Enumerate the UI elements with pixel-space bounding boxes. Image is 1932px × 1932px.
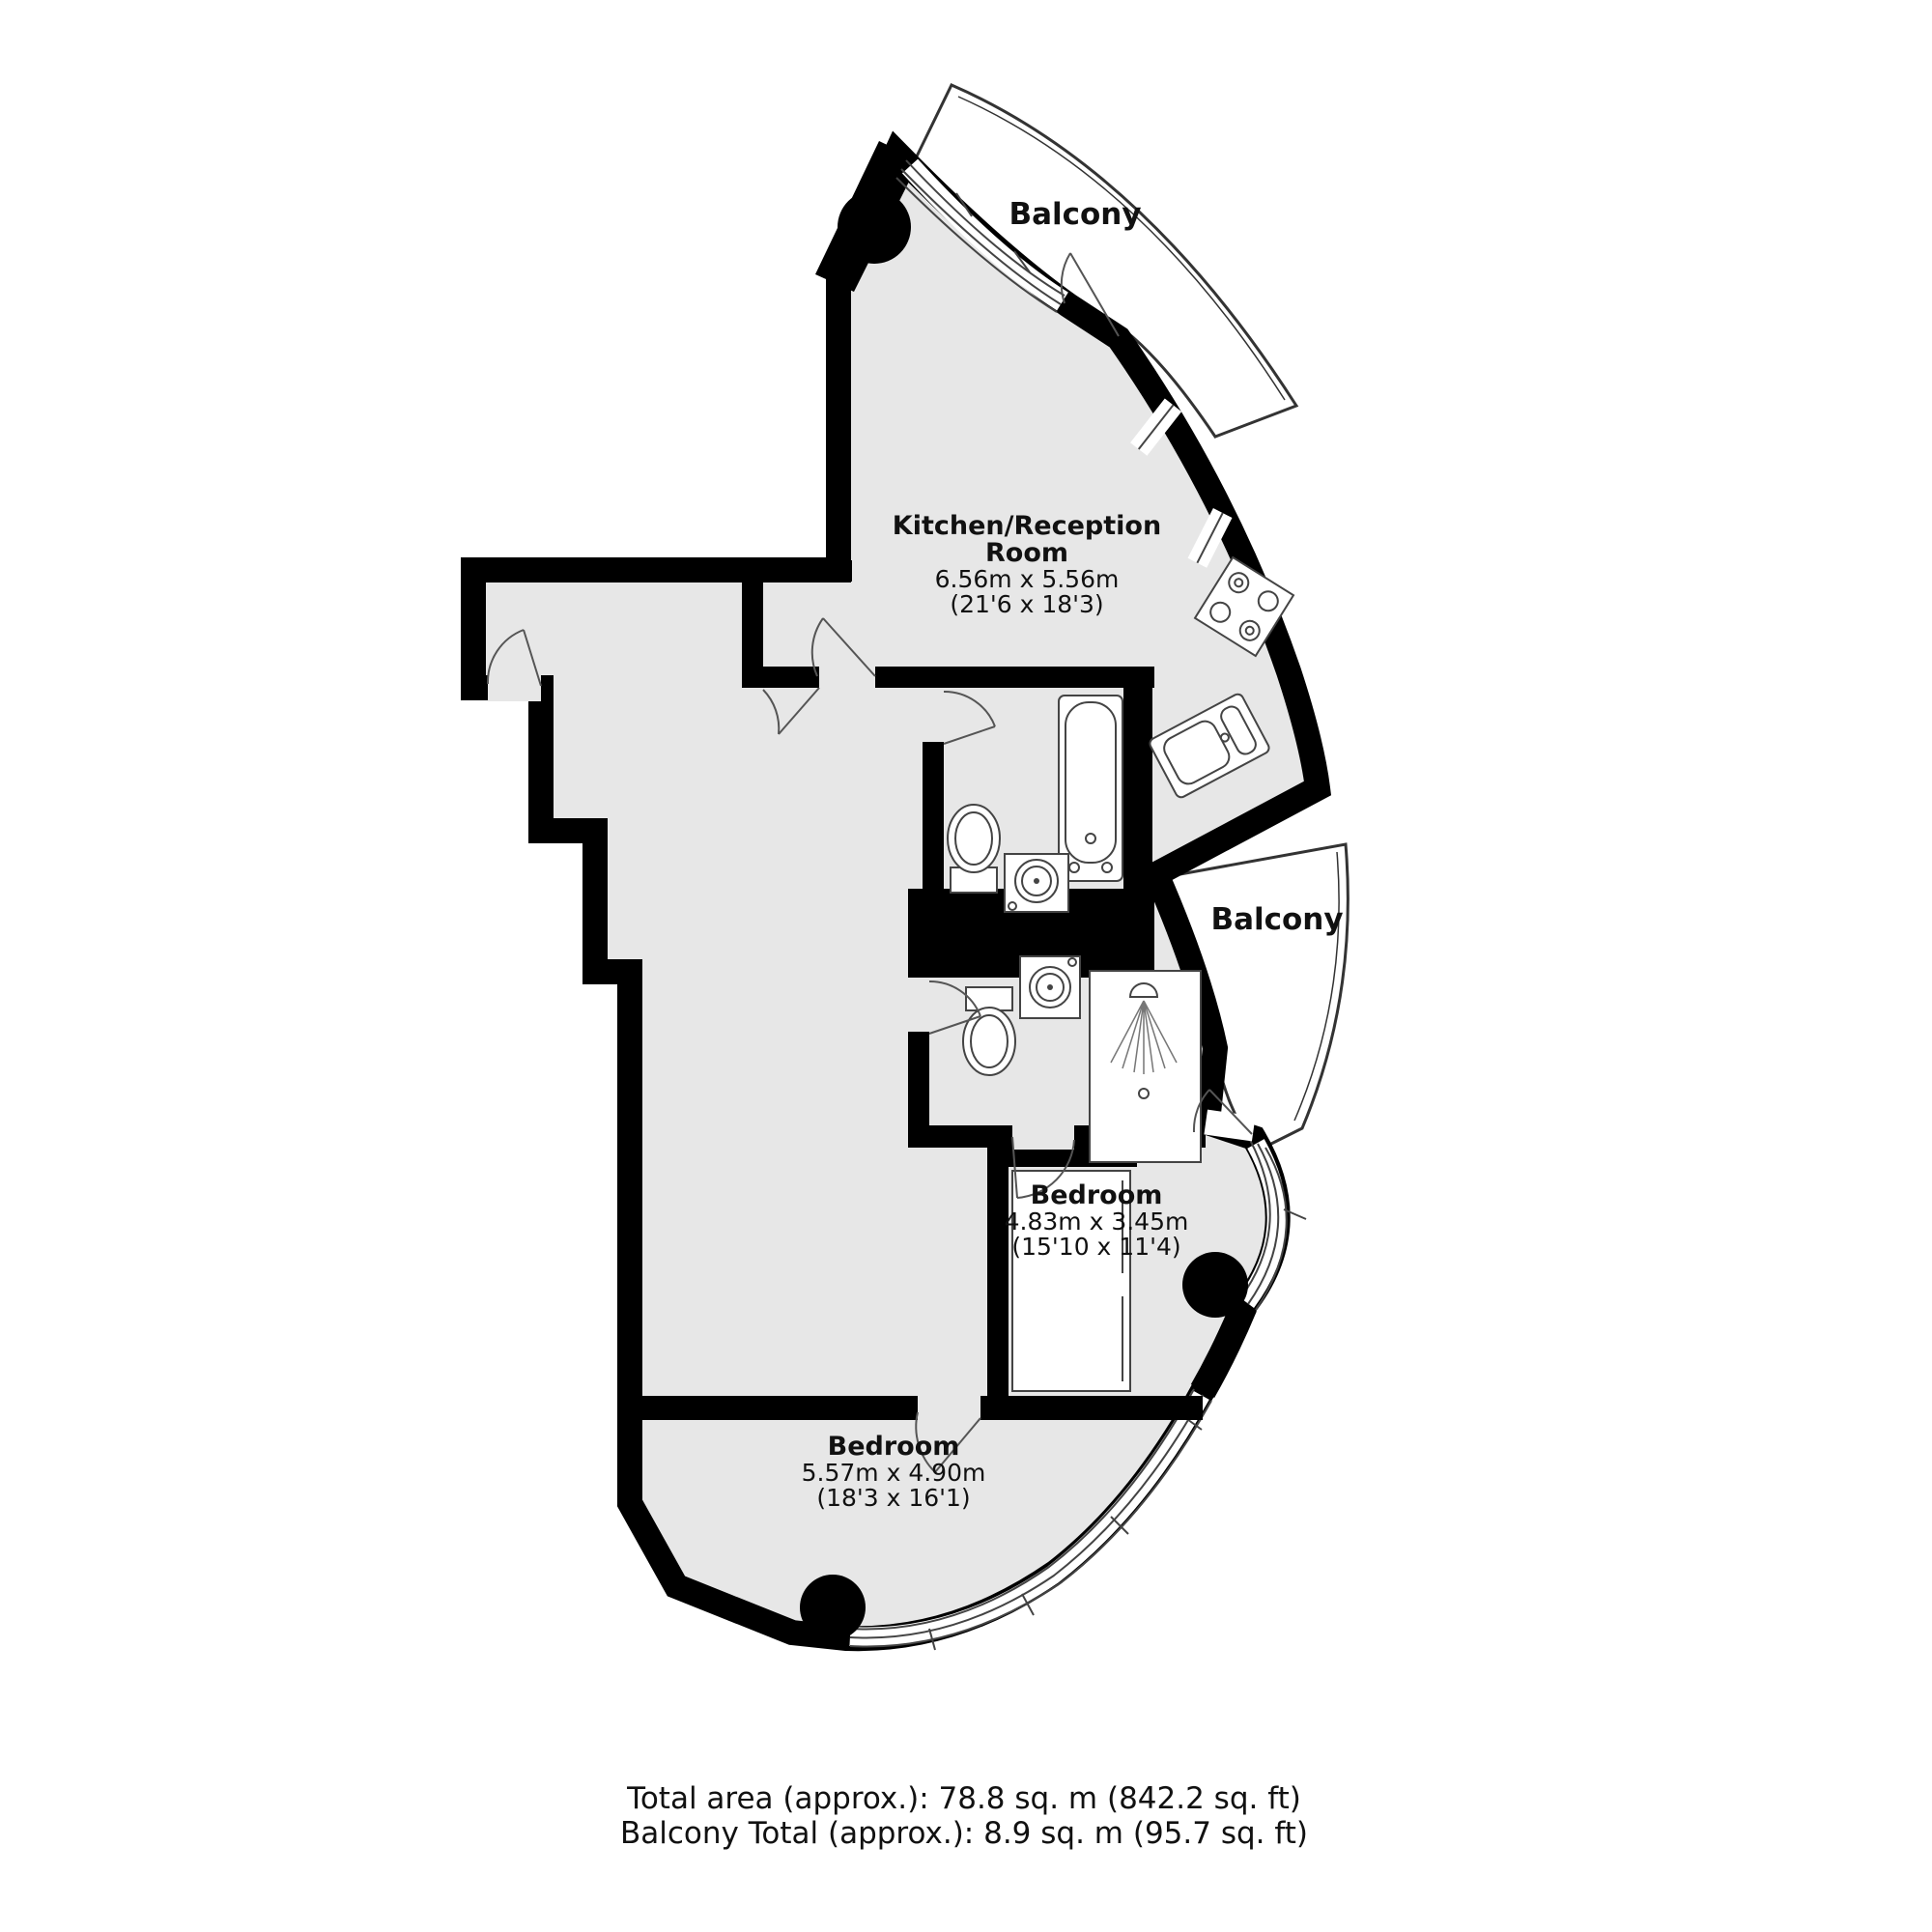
kitchen-name-line2: Room [985, 538, 1068, 568]
column-icon [800, 1575, 866, 1640]
bedroom2-name: Bedroom [828, 1432, 960, 1462]
kitchen-name-line1: Kitchen/Reception [893, 511, 1161, 541]
bedroom2-dim-metric: 5.57m x 4.90m [802, 1459, 986, 1487]
bedroom2-dim-imperial: (18'3 x 16'1) [816, 1484, 970, 1512]
balcony-mid-label: Balcony [1210, 902, 1343, 937]
bedroom1-dim-metric: 4.83m x 3.45m [1005, 1207, 1189, 1236]
bedroom2-label: Bedroom 5.57m x 4.90m (18'3 x 16'1) [802, 1432, 986, 1512]
total-area-text: Total area (approx.): 78.8 sq. m (842.2 … [626, 1781, 1301, 1816]
floorplan-drawing: Balcony Balcony Kitchen/Reception Room 6… [0, 0, 1932, 1932]
bedroom1-label: Bedroom 4.83m x 3.45m (15'10 x 11'4) [1005, 1180, 1189, 1261]
column-icon [1182, 1252, 1248, 1318]
kitchen-dim-metric: 6.56m x 5.56m [935, 565, 1120, 593]
shower-icon [1090, 971, 1201, 1162]
bedroom1-dim-imperial: (15'10 x 11'4) [1011, 1233, 1180, 1261]
kitchen-dim-imperial: (21'6 x 18'3) [950, 590, 1103, 618]
balcony-total-text: Balcony Total (approx.): 8.9 sq. m (95.7… [620, 1816, 1308, 1851]
bedroom1-name: Bedroom [1031, 1180, 1163, 1210]
basin-icon [1005, 854, 1068, 912]
basin-icon [1020, 956, 1080, 1018]
toilet-icon [948, 805, 1000, 893]
balcony-top-label: Balcony [1009, 197, 1141, 232]
footer-totals: Total area (approx.): 78.8 sq. m (842.2 … [620, 1781, 1308, 1851]
floorplan-page: Balcony Balcony Kitchen/Reception Room 6… [0, 0, 1932, 1932]
column-icon [838, 190, 911, 264]
